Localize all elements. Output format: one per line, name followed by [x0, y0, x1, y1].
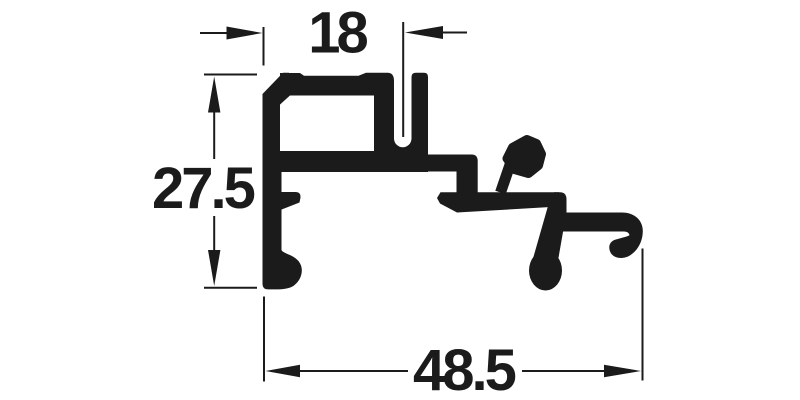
svg-text:48.5: 48.5	[413, 338, 516, 400]
svg-text:18: 18	[308, 1, 367, 66]
svg-text:27.5: 27.5	[152, 156, 255, 221]
